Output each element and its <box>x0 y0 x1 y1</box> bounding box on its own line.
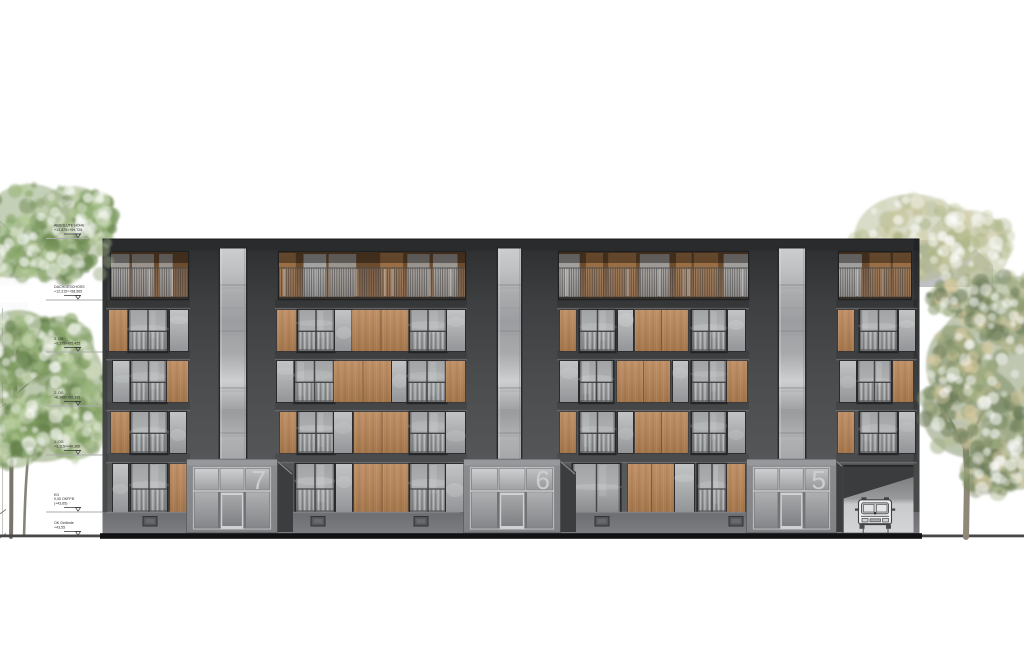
svg-text:7: 7 <box>252 465 266 495</box>
svg-text:(+43,65): (+43,65) <box>54 502 68 506</box>
svg-text:+43,55: +43,55 <box>54 526 65 530</box>
svg-text:+9,175=+55,425: +9,175=+55,425 <box>54 342 80 346</box>
svg-text:5: 5 <box>812 465 826 495</box>
svg-text:+3,115=+49,365: +3,115=+49,365 <box>54 445 80 449</box>
svg-text:+6,145=+52,395: +6,145=+52,395 <box>54 396 80 400</box>
svg-text:+12,315=+58,565: +12,315=+58,565 <box>54 290 82 294</box>
svg-text:+13,475=+59,725: +13,475=+59,725 <box>54 228 82 232</box>
svg-text:6: 6 <box>536 465 550 495</box>
